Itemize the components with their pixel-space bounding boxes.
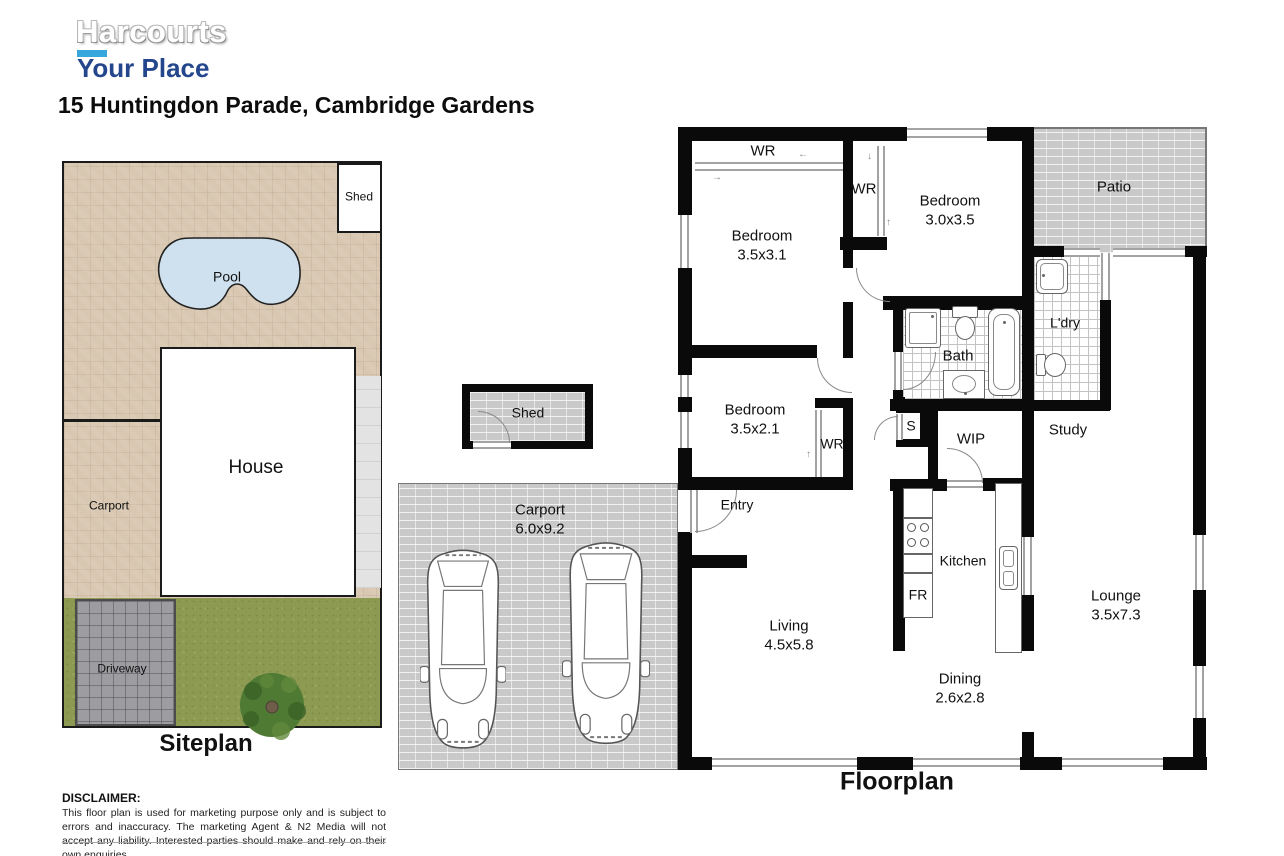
- floorplan-page: Harcourts Your Place 15 Huntingdon Parad…: [0, 0, 1284, 856]
- room-size: 3.0x3.5: [920, 211, 981, 230]
- wall: [1100, 300, 1111, 410]
- siteplan-driveway-label: Driveway: [97, 662, 146, 677]
- vanity-icon: [943, 370, 985, 399]
- wall: [1030, 400, 1110, 411]
- stove-icon: [903, 518, 933, 554]
- wardrobe-label: WR: [852, 181, 877, 200]
- disclaimer-body: This floor plan is used for marketing pu…: [62, 807, 386, 856]
- wall: [893, 300, 903, 352]
- laundry-label: L'dry: [1050, 314, 1080, 332]
- wall: [840, 237, 887, 250]
- room-size: 3.5x7.3: [1091, 606, 1141, 625]
- wall: [678, 555, 747, 568]
- wall: [678, 757, 712, 770]
- wall: [843, 398, 853, 487]
- siteplan-title: Siteplan: [159, 730, 252, 758]
- window: [913, 758, 1020, 767]
- window: [680, 375, 689, 397]
- siteplan-house-label: House: [229, 456, 284, 480]
- car-top-view: [562, 538, 650, 748]
- bedroom3-label: Bedroom 3.0x3.5: [920, 192, 981, 230]
- siteplan-pool: [153, 236, 305, 336]
- patio-label: Patio: [1097, 179, 1131, 198]
- arrow-up-icon: ↑: [886, 218, 891, 228]
- floorplan-title: Floorplan: [840, 768, 954, 797]
- window: [907, 128, 987, 138]
- window: [712, 758, 857, 767]
- window: [680, 412, 689, 448]
- wall: [1193, 718, 1206, 770]
- dining-label: Dining 2.6x2.8: [935, 670, 984, 708]
- room-size: 6.0x9.2: [515, 520, 565, 539]
- arrow-down-icon: ↓: [867, 152, 872, 162]
- window: [1195, 666, 1204, 718]
- siteplan-pool-label: Pool: [213, 268, 241, 286]
- hall-door-arc: [856, 268, 890, 302]
- bedroom2-door-arc: [817, 358, 852, 393]
- room-name: Lounge: [1091, 587, 1141, 606]
- wardrobe-label: WR: [820, 435, 843, 453]
- wip-label: WIP: [957, 431, 985, 450]
- wall: [678, 477, 853, 490]
- sliding-door: [877, 146, 885, 236]
- wall: [1193, 590, 1206, 666]
- wall: [1185, 246, 1207, 257]
- window: [680, 215, 689, 268]
- wall: [1193, 247, 1206, 535]
- wall: [678, 397, 692, 412]
- shed-label: Shed: [512, 404, 545, 422]
- living-label: Living 4.5x5.8: [764, 617, 813, 655]
- wall: [1022, 732, 1034, 758]
- wall: [843, 302, 853, 358]
- arrow-right-icon: →: [712, 173, 722, 183]
- room-name: Bedroom: [732, 227, 793, 246]
- arrow-up-icon: ↑: [806, 450, 811, 460]
- window: [1062, 758, 1163, 767]
- kitchen-bench: [903, 488, 933, 518]
- toilet-bowl-icon: [1044, 353, 1066, 377]
- wall: [678, 268, 692, 375]
- wall: [1022, 595, 1034, 651]
- bedroom1-label: Bedroom 3.5x3.1: [732, 227, 793, 265]
- room-size: 4.5x5.8: [764, 636, 813, 655]
- brand-logo-harcourts: Harcourts: [76, 14, 227, 50]
- room-name: Bedroom: [920, 192, 981, 211]
- kitchen-bench: [903, 554, 933, 573]
- carport-label: Carport 6.0x9.2: [515, 501, 565, 539]
- wardrobe-label: WR: [751, 143, 776, 162]
- siteplan-shed-label: Shed: [345, 190, 373, 205]
- siteplan-carport-line: [64, 419, 161, 422]
- brand-logo-your-place: Your Place: [77, 53, 209, 84]
- wall: [678, 127, 907, 141]
- store-label: S: [906, 417, 915, 435]
- room-size: 2.6x2.8: [935, 689, 984, 708]
- room-size: 3.5x2.1: [725, 420, 786, 439]
- window: [1101, 253, 1110, 300]
- bathtub-icon: [988, 308, 1020, 396]
- room-name: Living: [764, 617, 813, 636]
- disclaimer-heading: DISCLAIMER:: [62, 791, 141, 805]
- wall: [987, 127, 1034, 141]
- room-size: 3.5x3.1: [732, 246, 793, 265]
- wall: [1030, 246, 1064, 257]
- wall: [928, 407, 938, 487]
- study-label: Study: [1049, 422, 1087, 441]
- bath-label: Bath: [943, 348, 974, 367]
- shower-icon: [905, 308, 941, 348]
- divider: [62, 842, 386, 843]
- car-top-view: [420, 545, 506, 753]
- fridge-label: FR: [909, 586, 928, 604]
- toilet-bowl-icon: [955, 316, 975, 340]
- siteplan-carport-label: Carport: [89, 499, 129, 514]
- room-name: Carport: [515, 501, 565, 520]
- wall: [896, 439, 928, 447]
- kitchen-label: Kitchen: [940, 552, 987, 570]
- window: [1195, 535, 1204, 590]
- wall: [678, 345, 817, 358]
- closet-door-arc: [874, 416, 898, 440]
- property-address: 15 Huntingdon Parade, Cambridge Gardens: [58, 92, 535, 119]
- bath-door-leaf: [894, 352, 902, 390]
- lounge-label: Lounge 3.5x7.3: [1091, 587, 1141, 625]
- sink-icon: [999, 546, 1018, 590]
- laundry-tub-icon: [1036, 259, 1068, 294]
- sliding-door: [695, 162, 843, 171]
- wall: [1020, 757, 1062, 770]
- room-name: Bedroom: [725, 401, 786, 420]
- arrow-left-icon: ←: [798, 150, 808, 160]
- wip-door-arc: [947, 448, 983, 483]
- siteplan-side-path: [355, 376, 381, 588]
- wall: [678, 127, 692, 215]
- room-name: Dining: [935, 670, 984, 689]
- window: [1113, 248, 1185, 257]
- window: [1023, 537, 1032, 595]
- window: [1064, 248, 1100, 257]
- entry-label: Entry: [721, 496, 754, 514]
- bedroom2-label: Bedroom 3.5x2.1: [725, 401, 786, 439]
